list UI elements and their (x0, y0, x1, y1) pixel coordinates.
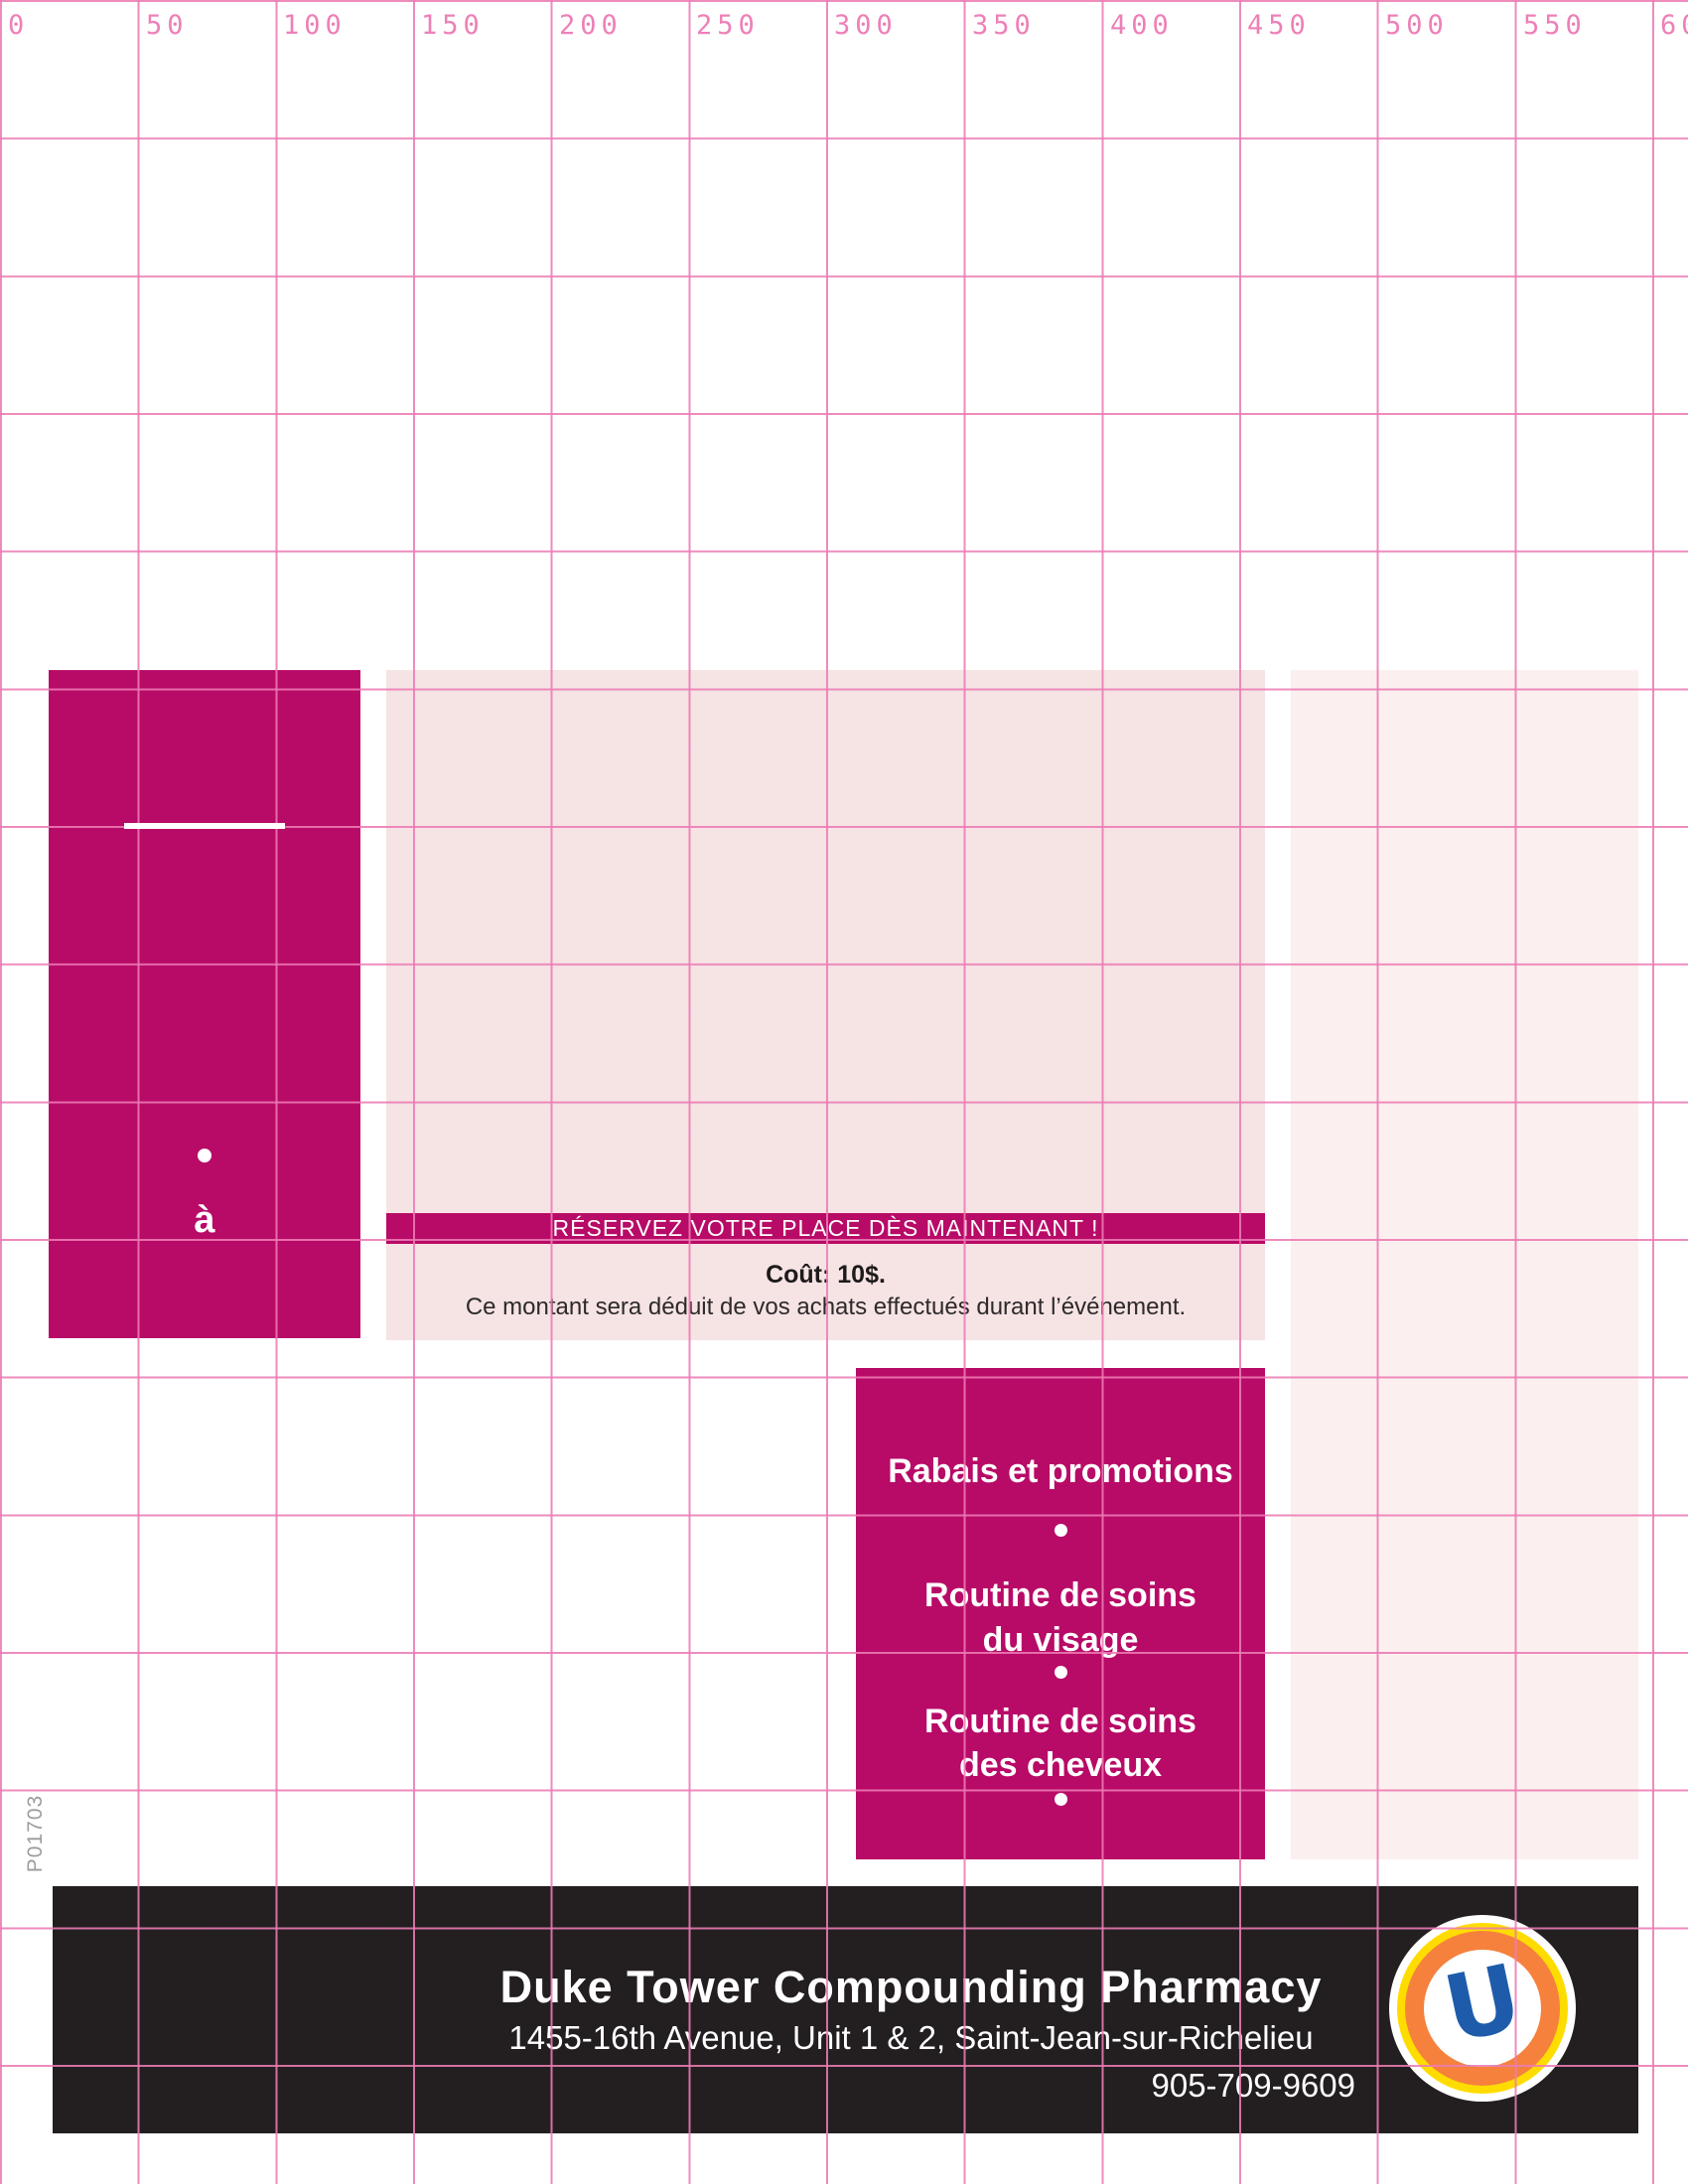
ruler: 0 50 100 150 200 250 300 350 400 450 500… (0, 0, 1688, 60)
flyer-proof-page: à RÉSERVEZ VOTRE PLACE DÈS MAINTENANT ! … (0, 0, 1688, 2184)
ruler-label: 50 (146, 10, 189, 41)
ruler-label: 200 (559, 10, 623, 41)
ruler-label: 400 (1110, 10, 1174, 41)
plate-code: P01703 (24, 1734, 50, 1933)
logo-outer-ring: U (1389, 1915, 1576, 2102)
divider-line (124, 823, 285, 829)
topic-promotions: Rabais et promotions (856, 1449, 1265, 1494)
reservation-banner: RÉSERVEZ VOTRE PLACE DÈS MAINTENANT ! (386, 1213, 1265, 1244)
footer-text-block: Duke Tower Compounding Pharmacy 1455-16t… (467, 1886, 1355, 2133)
right-margin-panel (1291, 670, 1638, 1859)
topic-hair-care-line1: Routine de soins (856, 1700, 1265, 1744)
bullet-dot (198, 1149, 211, 1162)
ruler-label: 450 (1247, 10, 1311, 41)
ruler-label: 350 (972, 10, 1036, 41)
ruler-label: 150 (421, 10, 485, 41)
topic-separator-dot (1055, 1793, 1067, 1806)
pharmacy-phone: 905-709-9609 (467, 2067, 1355, 2105)
topic-hair-care-line2: des cheveux (856, 1743, 1265, 1788)
topic-face-care-line2: du visage (856, 1618, 1265, 1663)
logo-yellow-ring: U (1397, 1923, 1568, 2094)
logo-center-disc: U (1424, 1950, 1541, 2067)
topic-face-care-line1: Routine de soins (856, 1573, 1265, 1618)
ruler-label: 500 (1385, 10, 1449, 41)
ruler-label: 300 (834, 10, 898, 41)
preposition-a-label: à (49, 1199, 360, 1242)
ruler-label: 250 (696, 10, 760, 41)
pharmacy-address: 1455-16th Avenue, Unit 1 & 2, Saint-Jean… (467, 2019, 1355, 2057)
logo-orange-ring: U (1405, 1931, 1560, 2086)
ruler-label: 550 (1523, 10, 1587, 41)
cost-title: Coût: 10$. (386, 1261, 1265, 1290)
uniprix-logo: U (1389, 1915, 1576, 2102)
ruler-label: 600 (1660, 10, 1688, 41)
logo-letter: U (1437, 1952, 1528, 2057)
pharmacy-name: Duke Tower Compounding Pharmacy (467, 1962, 1355, 2013)
reservation-banner-text: RÉSERVEZ VOTRE PLACE DÈS MAINTENANT ! (553, 1215, 1099, 1242)
cost-note: Ce montant sera déduit de vos achats eff… (386, 1294, 1265, 1321)
ruler-label: 0 (8, 10, 29, 41)
topic-separator-dot (1055, 1524, 1067, 1537)
ruler-label: 100 (283, 10, 347, 41)
topics-panel: Rabais et promotions Routine de soins du… (856, 1368, 1265, 1859)
topic-separator-dot (1055, 1666, 1067, 1679)
